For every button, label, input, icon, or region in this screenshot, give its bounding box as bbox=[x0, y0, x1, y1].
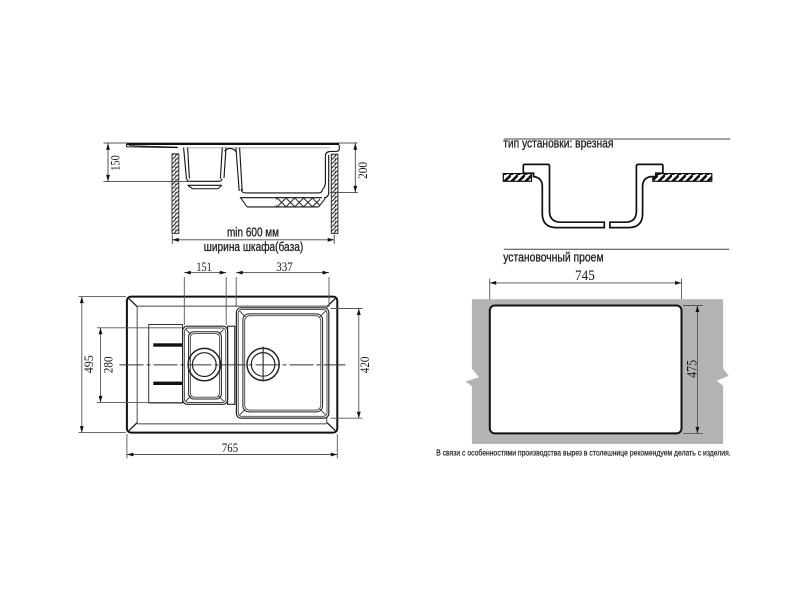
svg-text:337: 337 bbox=[276, 260, 293, 274]
svg-text:тип установки: врезная: тип установки: врезная bbox=[503, 136, 613, 150]
svg-text:280: 280 bbox=[100, 356, 115, 373]
svg-text:765: 765 bbox=[222, 440, 238, 455]
svg-text:745: 745 bbox=[575, 268, 595, 284]
svg-text:495: 495 bbox=[81, 355, 96, 373]
svg-text:150: 150 bbox=[108, 155, 122, 171]
svg-text:установочный проем: установочный проем bbox=[503, 251, 603, 265]
svg-text:ширина шкафа(база): ширина шкафа(база) bbox=[204, 240, 303, 254]
svg-text:min 600 мм: min 600 мм bbox=[227, 226, 279, 240]
svg-text:151: 151 bbox=[196, 260, 211, 274]
svg-text:475: 475 bbox=[685, 360, 701, 378]
svg-text:420: 420 bbox=[357, 357, 372, 374]
svg-text:200: 200 bbox=[356, 162, 370, 179]
svg-text:В связи с особенностями произв: В связи с особенностями производства выр… bbox=[436, 449, 731, 458]
